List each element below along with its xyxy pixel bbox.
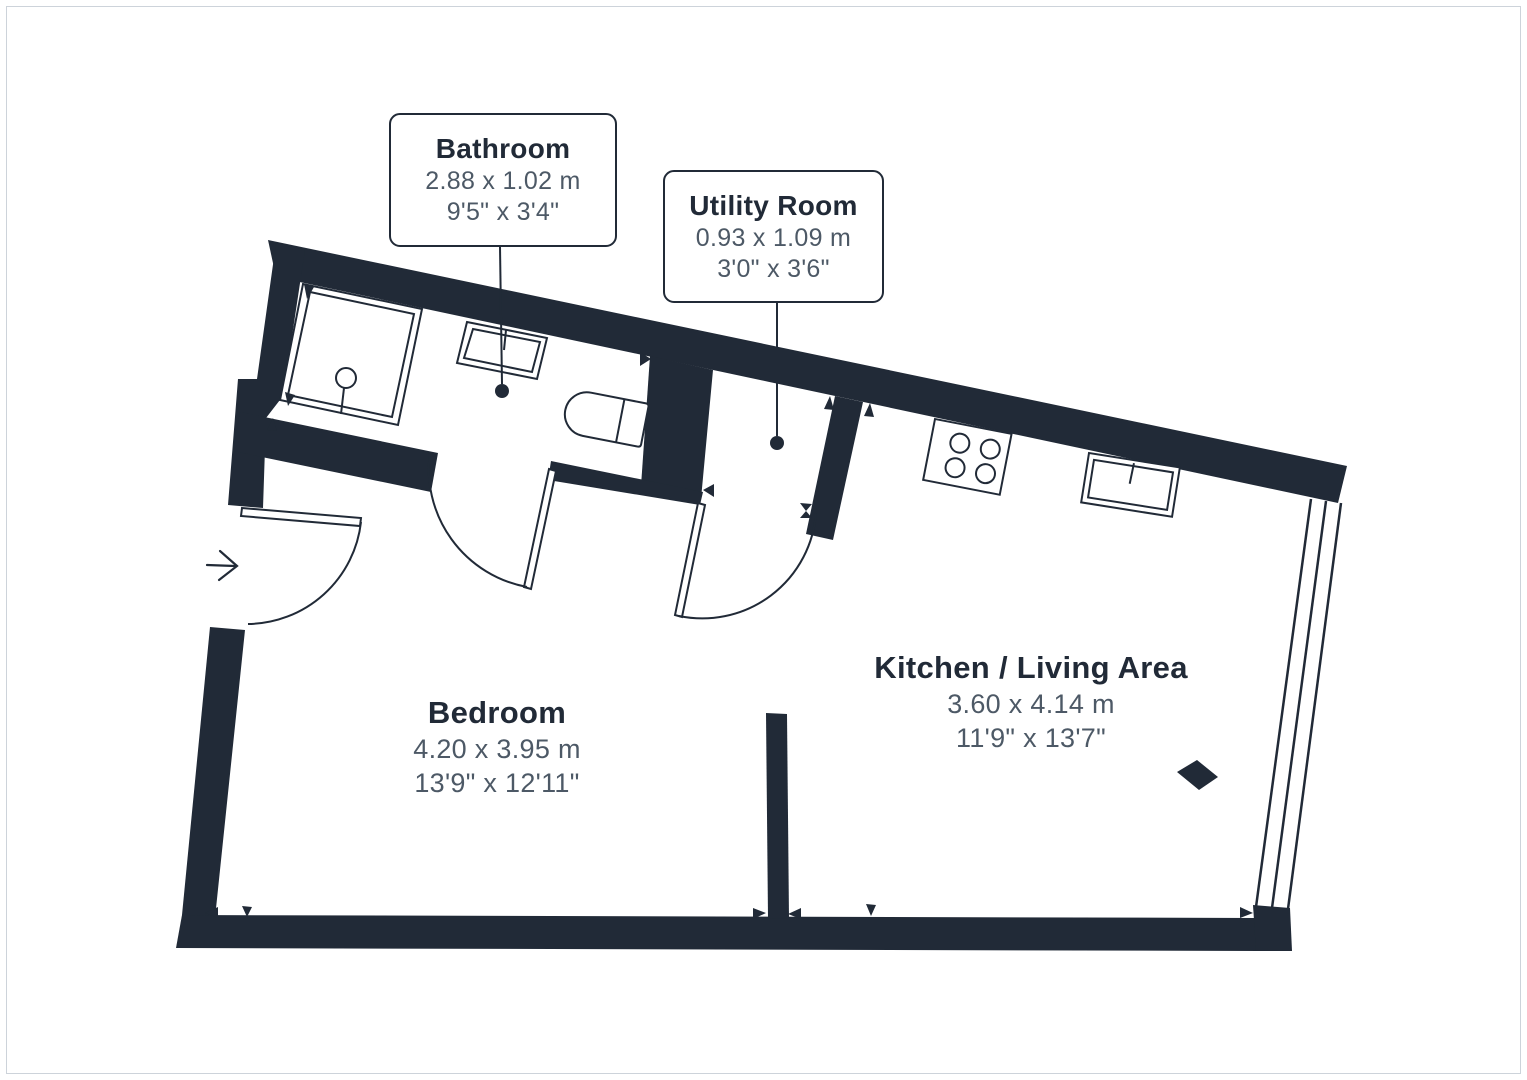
- bathroom-leader-dot: [495, 384, 509, 398]
- window-pane-line: [1256, 499, 1311, 907]
- entry-arrow-icon: [207, 551, 237, 580]
- utility-room-callout-title: Utility Room: [689, 189, 857, 223]
- bedroom-label-imperial: 13'9" x 12'11": [413, 766, 581, 800]
- entry-door: [241, 508, 361, 624]
- bathroom-callout-imperial: 9'5" x 3'4": [447, 197, 560, 228]
- wall-left-lower: [182, 627, 245, 918]
- bathroom-door-swing-arc: [429, 452, 527, 587]
- kitchen-living-area-label-metric: 3.60 x 4.14 m: [874, 687, 1187, 721]
- wall-bottom-right-block: [1253, 905, 1292, 951]
- bedroom-label: Bedroom 4.20 x 3.95 m 13'9" x 12'11": [413, 694, 581, 800]
- toilet-body: [561, 388, 649, 447]
- window: [1256, 499, 1341, 909]
- wall-bedroom-kitchen-partition: [766, 713, 789, 919]
- marker-triangle: [703, 484, 714, 497]
- hob-outline: [923, 419, 1011, 495]
- shower: [280, 284, 422, 425]
- utility-room-callout: Utility Room 0.93 x 1.09 m 3'0" x 3'6": [663, 170, 884, 303]
- marker-triangle: [800, 503, 812, 511]
- bathroom-door: [429, 452, 556, 589]
- marker-triangle: [864, 403, 874, 417]
- entry-door-leaf: [241, 508, 361, 526]
- marker-triangle: [824, 396, 834, 410]
- kitchen-living-area-label: Kitchen / Living Area 3.60 x 4.14 m 11'9…: [874, 649, 1187, 755]
- bathroom-callout-title: Bathroom: [436, 132, 571, 166]
- entry-door-swing-arc: [248, 522, 361, 624]
- column: [1177, 760, 1218, 790]
- bathroom-callout: Bathroom 2.88 x 1.02 m 9'5" x 3'4": [389, 113, 617, 247]
- utility-leader-dot: [770, 436, 784, 450]
- window-pane-line: [1272, 501, 1326, 908]
- kitchen-living-area-label-imperial: 11'9" x 13'7": [874, 721, 1187, 755]
- wall-bottom: [176, 915, 1258, 951]
- hob: [923, 419, 1011, 495]
- utility-door-leaf: [675, 503, 705, 617]
- marker-triangle: [1240, 907, 1253, 918]
- utility-room-callout-imperial: 3'0" x 3'6": [717, 254, 830, 285]
- shower-enclosure-inner: [288, 292, 414, 417]
- bathroom-door-leaf: [524, 469, 556, 589]
- floor-plan-drawing: [0, 0, 1527, 1080]
- bedroom-label-metric: 4.20 x 3.95 m: [413, 732, 581, 766]
- toilet: [561, 388, 649, 447]
- bedroom-label-title: Bedroom: [413, 694, 581, 732]
- kitchen-living-area-label-title: Kitchen / Living Area: [874, 649, 1187, 687]
- entry-arrow-shaft: [207, 565, 235, 566]
- wall-utility-left: [641, 356, 713, 499]
- bathroom-callout-metric: 2.88 x 1.02 m: [425, 166, 580, 197]
- floor-plan-page: Bathroom 2.88 x 1.02 m 9'5" x 3'4" Utili…: [0, 0, 1527, 1080]
- utility-room-callout-metric: 0.93 x 1.09 m: [696, 223, 851, 254]
- marker-triangle: [866, 904, 876, 916]
- window-pane-line: [1288, 503, 1341, 909]
- utility-door: [675, 503, 816, 618]
